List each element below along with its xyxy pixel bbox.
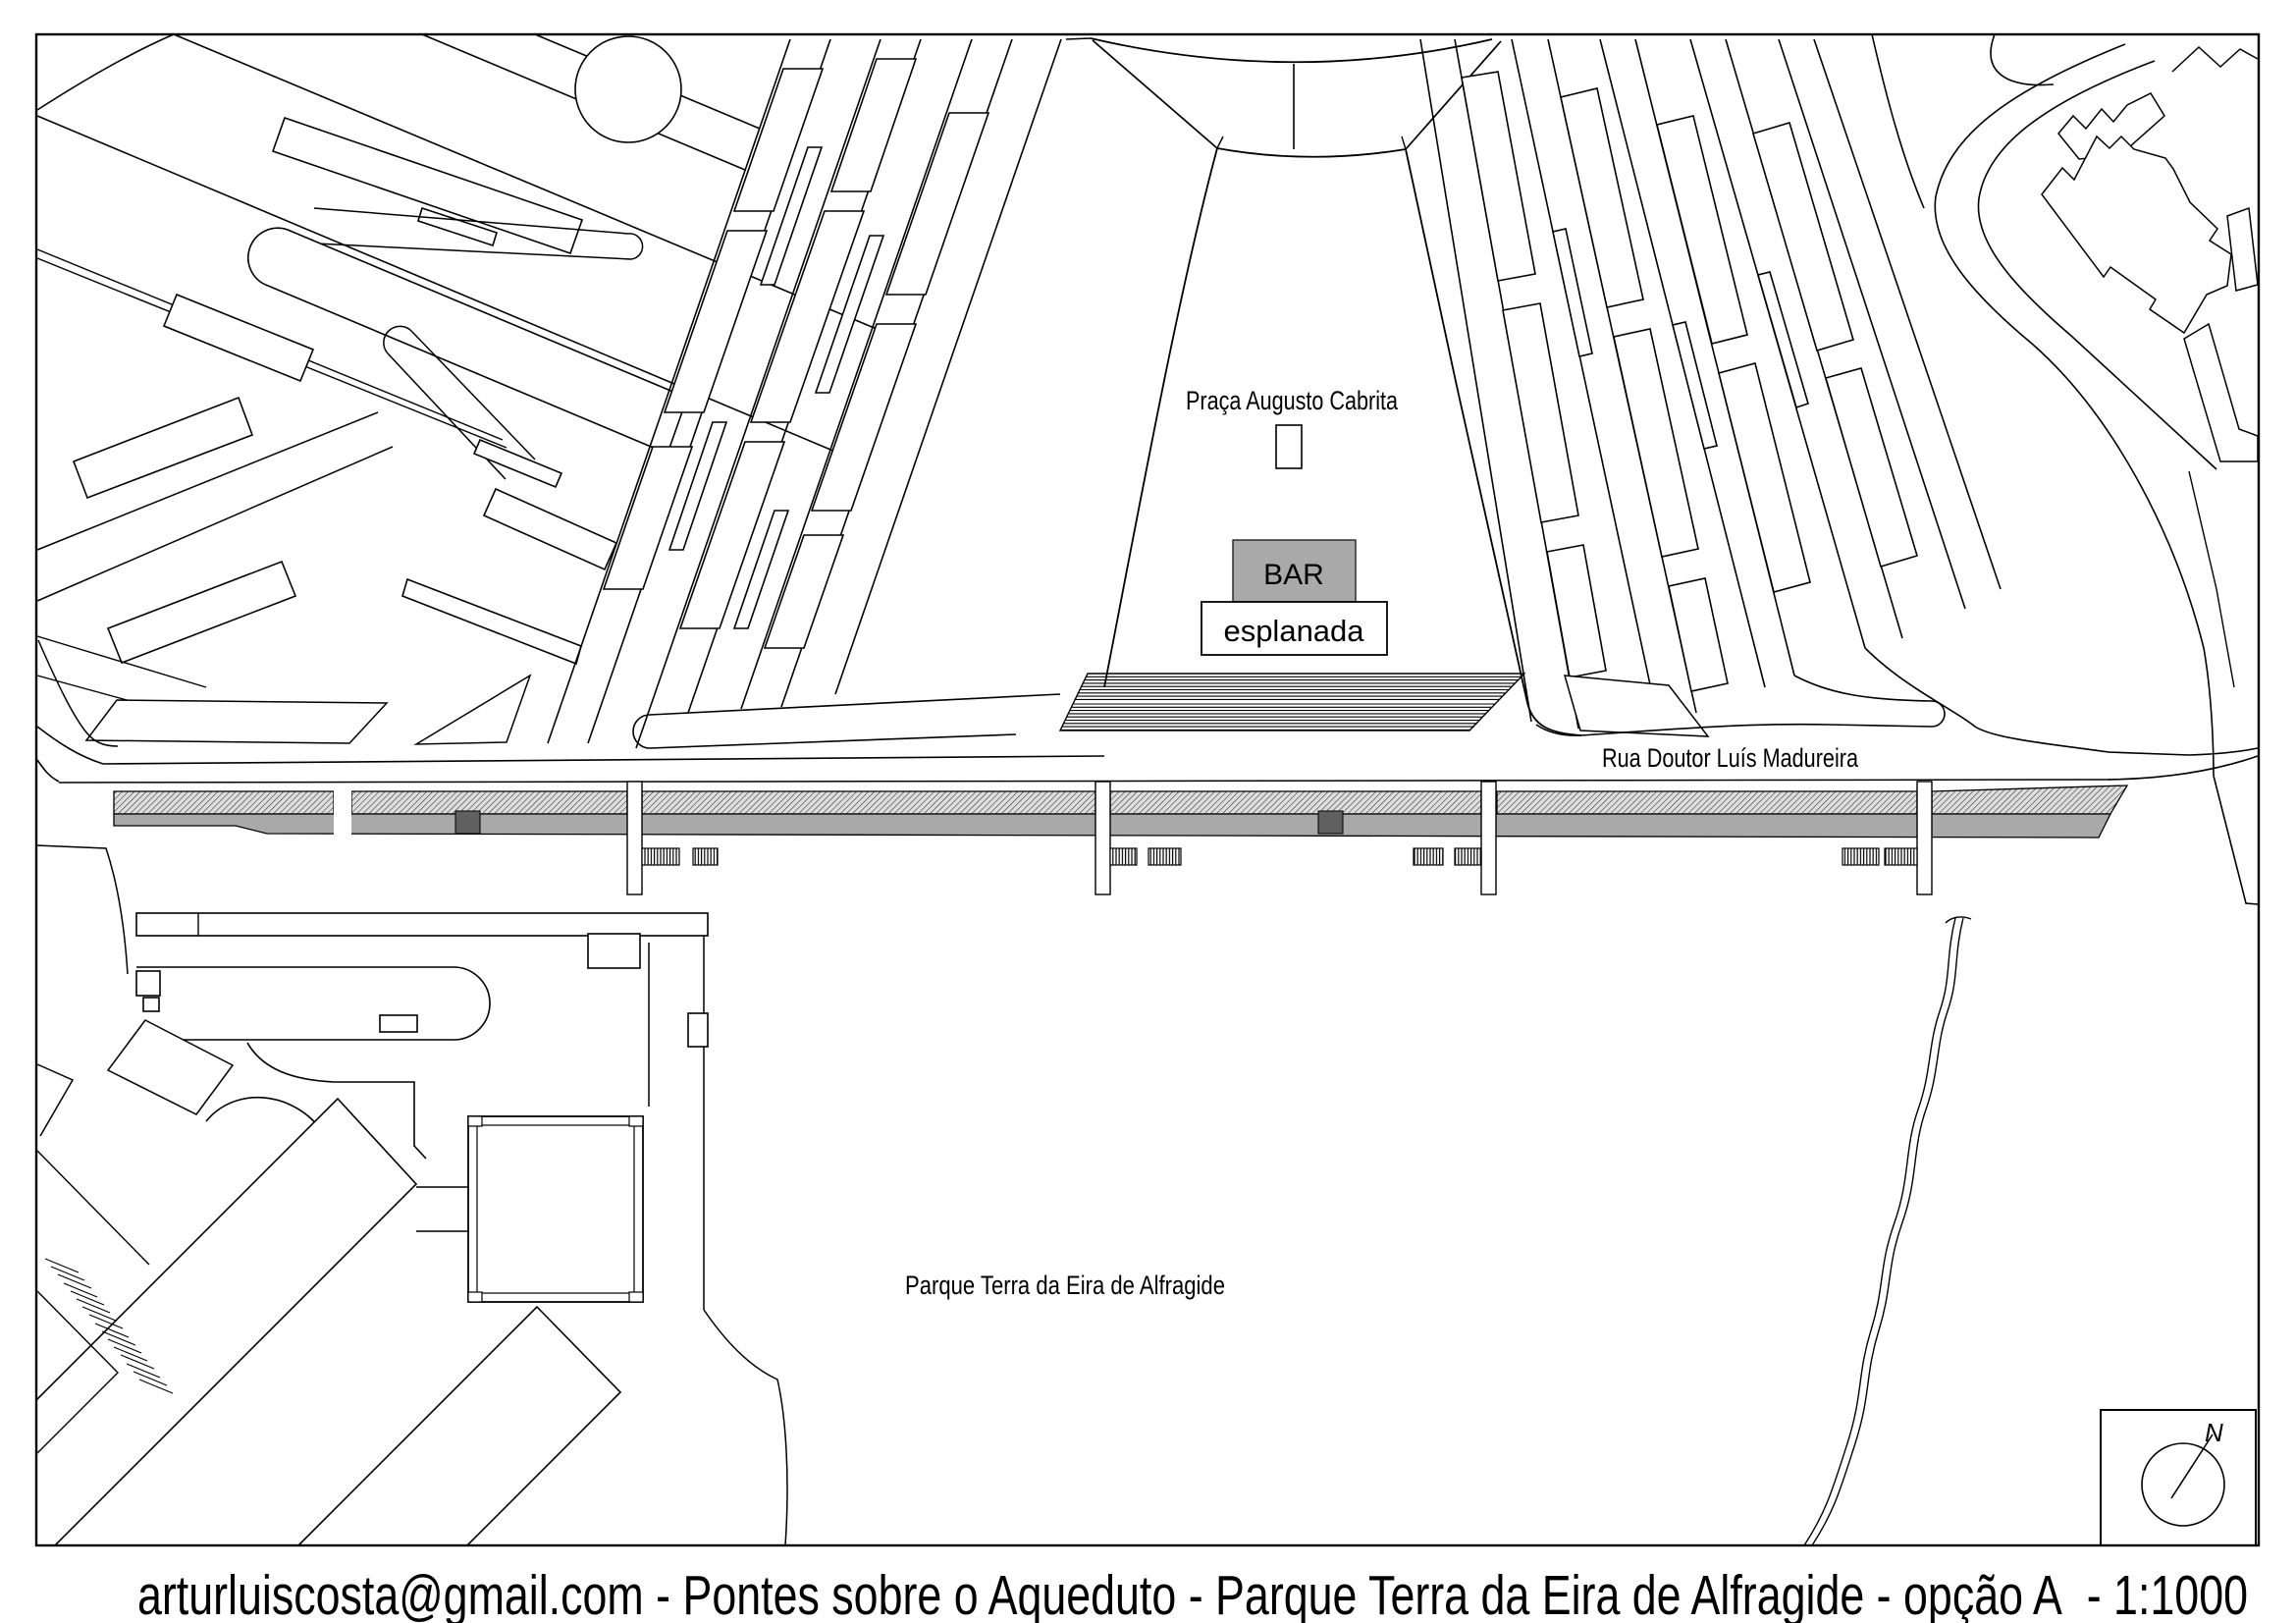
svg-text:arturluiscosta@gmail.com - Pon: arturluiscosta@gmail.com - Pontes sobre … xyxy=(137,1564,2248,1623)
svg-text:esplanada: esplanada xyxy=(1223,614,1364,648)
svg-text:Parque Terra da Eira de Alfrag: Parque Terra da Eira de Alfragide xyxy=(905,1271,1225,1300)
svg-text:BAR: BAR xyxy=(1263,559,1324,591)
svg-text:Praça Augusto Cabrita: Praça Augusto Cabrita xyxy=(1186,386,1399,415)
svg-text:N: N xyxy=(2205,1418,2223,1447)
svg-text:Rua Doutor Luís Madureira: Rua Doutor Luís Madureira xyxy=(1602,743,1859,773)
